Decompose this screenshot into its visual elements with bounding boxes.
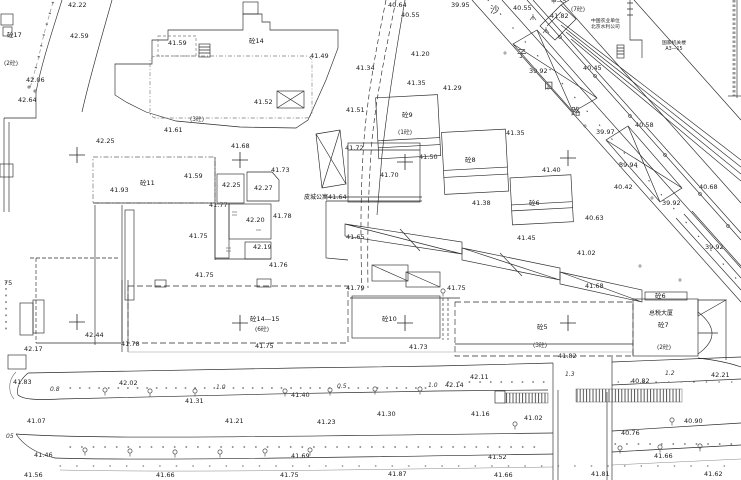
spot-elevation-label: 40.76	[621, 430, 640, 437]
spot-elevation-label: 41.35	[407, 80, 426, 87]
floor-count-label: 甲—5	[551, 0, 566, 6]
floor-count-label: (1砼)	[398, 131, 412, 137]
street-name-char: 沙	[490, 6, 500, 16]
spot-elevation-label: 39.95	[451, 2, 470, 9]
spot-elevation-label: 42.19	[253, 244, 272, 251]
spot-elevation-label: 42.27	[254, 185, 273, 192]
building-number-label: 砼8	[465, 157, 476, 164]
spot-elevation-label: 41.64	[328, 194, 347, 201]
site-plan-map: 42.2242.5941.5942.0642.6440.6440.5539.95…	[0, 0, 741, 480]
spot-elevation-label: 41.82	[558, 353, 577, 360]
spot-elevation-label: 41.82	[550, 13, 569, 20]
organization-label: 国家机关楼A3—15	[662, 41, 686, 53]
spot-elevation-label: 42.25	[96, 138, 115, 145]
spot-elevation-label: 40.63	[585, 215, 604, 222]
spot-elevation-label: 42.25	[222, 182, 241, 189]
spot-elevation-label: 41.87	[388, 471, 407, 478]
spot-elevation-label: 41.68	[585, 283, 604, 290]
spot-elevation-label: 41.35	[506, 130, 525, 137]
spot-elevation-label: 41.20	[411, 51, 430, 58]
spot-elevation-label: 41.45	[517, 235, 536, 242]
road-width-label: 0.8	[50, 387, 60, 393]
spot-elevation-label: 41.83	[13, 379, 32, 386]
spot-elevation-label: 41.76	[269, 262, 288, 269]
street-name-char: 路	[571, 108, 581, 118]
spot-elevation-label: 41.62	[704, 471, 723, 478]
spot-elevation-label: 41.50	[419, 154, 438, 161]
spot-elevation-label: 41.75	[447, 285, 466, 292]
building-number-label: 砼11	[140, 180, 155, 187]
spot-elevation-label: 41.59	[168, 40, 187, 47]
spot-elevation-label: 42.59	[70, 33, 89, 40]
spot-elevation-label: 41.02	[577, 250, 596, 257]
spot-elevation-label: 40.64	[388, 2, 407, 9]
spot-elevation-label: 41.16	[471, 411, 490, 418]
spot-elevation-label: 41.75	[255, 343, 274, 350]
spot-elevation-label: 41.75	[195, 272, 214, 279]
place-name-label: 总税大厦	[649, 311, 673, 317]
spot-elevation-label: 41.40	[291, 392, 310, 399]
floor-count-label: (2砼)	[657, 346, 671, 352]
spot-elevation-label: 39.97	[596, 129, 615, 136]
road-width-label: 0.5	[337, 384, 347, 390]
spot-elevation-label: 75	[4, 280, 12, 287]
spot-elevation-label: 41.77	[209, 202, 228, 209]
spot-elevation-label: 41.61	[164, 127, 183, 134]
spot-elevation-label: 40.58	[635, 122, 654, 129]
building-number-label: 砼17	[7, 32, 22, 39]
spot-elevation-label: 42.14	[445, 382, 464, 389]
floor-count-label: (6砼)	[255, 328, 269, 334]
spot-elevation-label: 41.23	[317, 419, 336, 426]
organization-label-line: A3—15	[662, 47, 686, 53]
spot-elevation-label: 39.94	[619, 162, 638, 169]
building-number-label: 砼14	[249, 38, 264, 45]
spot-elevation-label: 40.45	[583, 65, 602, 72]
spot-elevation-label: 42.64	[18, 97, 37, 104]
building-number-label: 砼10	[382, 316, 397, 323]
building-number-label: 砼9	[402, 112, 413, 119]
spot-elevation-label: 41.52	[488, 454, 507, 461]
spot-elevation-label: 41.78	[273, 213, 292, 220]
spot-elevation-label: 41.66	[494, 472, 513, 479]
organization-label: 中国农业单位北京水利公司	[591, 19, 620, 31]
building-number-label: 砼14—15	[250, 316, 280, 323]
spot-elevation-label: 41.07	[27, 418, 46, 425]
building-number-label: 砼7	[658, 322, 669, 329]
spot-elevation-label: 41.66	[654, 453, 673, 460]
spot-elevation-label: 41.31	[185, 398, 204, 405]
spot-elevation-label: 41.73	[271, 167, 290, 174]
spot-elevation-label: 41.38	[472, 200, 491, 207]
spot-elevation-label: 39.92	[662, 200, 681, 207]
spot-elevation-label: 40.68	[699, 184, 718, 191]
spot-elevation-label: 39.92	[529, 68, 548, 75]
road-width-label: 1.3	[565, 372, 575, 378]
building-number-label: 砼6	[655, 293, 666, 300]
spot-elevation-label: 41.73	[409, 344, 428, 351]
spot-elevation-label: 41.75	[280, 472, 299, 479]
organization-label-line: 北京水利公司	[591, 25, 620, 31]
spot-elevation-label: 41.46	[34, 452, 53, 459]
spot-elevation-label: 41.40	[542, 167, 561, 174]
spot-elevation-label: 41.72	[345, 145, 364, 152]
street-name-char: 子	[517, 50, 527, 60]
spot-elevation-label: 41.75	[189, 233, 208, 240]
spot-elevation-label: 41.81	[591, 471, 610, 478]
spot-elevation-label: 41.52	[254, 99, 273, 106]
spot-elevation-label: 41.56	[24, 472, 43, 479]
floor-count-label: (3砼)	[533, 344, 547, 350]
spot-elevation-label: 41.51	[346, 107, 365, 114]
road-width-label: 1.2	[665, 371, 675, 377]
spot-elevation-label: 41.78	[121, 341, 140, 348]
place-name-label: 皮城公寓	[304, 195, 328, 201]
spot-elevation-label: 42.20	[246, 217, 265, 224]
spot-elevation-label: 41.93	[110, 187, 129, 194]
spot-elevation-label: 41.69	[291, 453, 310, 460]
road-width-label: 1.0	[428, 383, 438, 389]
spot-elevation-label: 40.55	[401, 12, 420, 19]
spot-elevation-label: 41.68	[231, 143, 250, 150]
spot-elevation-label: 42.17	[24, 346, 43, 353]
floor-count-label: (2砼)	[4, 62, 18, 68]
spot-elevation-label: 42.44	[85, 332, 104, 339]
spot-elevation-label: 41.79	[346, 285, 365, 292]
building-number-label: 砼6	[529, 200, 540, 207]
spot-elevation-label: 40.90	[684, 418, 703, 425]
spot-elevation-label: 41.30	[377, 411, 396, 418]
spot-elevation-label: 41.02	[524, 415, 543, 422]
label-layer: 42.2242.5941.5942.0642.6440.6440.5539.95…	[0, 0, 741, 480]
spot-elevation-label: 41.21	[225, 418, 244, 425]
floor-count-label: (7砼)	[571, 8, 585, 14]
spot-elevation-label: 41.34	[356, 65, 375, 72]
spot-elevation-label: 41.49	[310, 53, 329, 60]
spot-elevation-label: 42.11	[470, 374, 489, 381]
spot-elevation-label: 42.06	[26, 77, 45, 84]
road-width-label: 1.0	[216, 385, 226, 391]
spot-elevation-label: 39.92	[705, 244, 724, 251]
building-number-label: 砼5	[537, 324, 548, 331]
spot-elevation-label: 40.82	[631, 378, 650, 385]
spot-elevation-label: 40.55	[513, 5, 532, 12]
spot-elevation-label: 41.66	[156, 472, 175, 479]
spot-elevation-label: 42.22	[68, 2, 87, 9]
spot-elevation-label: 42.21	[711, 372, 730, 379]
road-width-label: 05	[6, 434, 14, 440]
spot-elevation-label: 41.65	[346, 234, 365, 241]
floor-count-label: (3砼)	[190, 118, 204, 124]
spot-elevation-label: 42.02	[119, 380, 138, 387]
street-name-char: 口	[544, 82, 554, 92]
spot-elevation-label: 41.70	[380, 172, 399, 179]
spot-elevation-label: 41.29	[443, 85, 462, 92]
spot-elevation-label: 40.42	[614, 184, 633, 191]
spot-elevation-label: 41.59	[184, 173, 203, 180]
